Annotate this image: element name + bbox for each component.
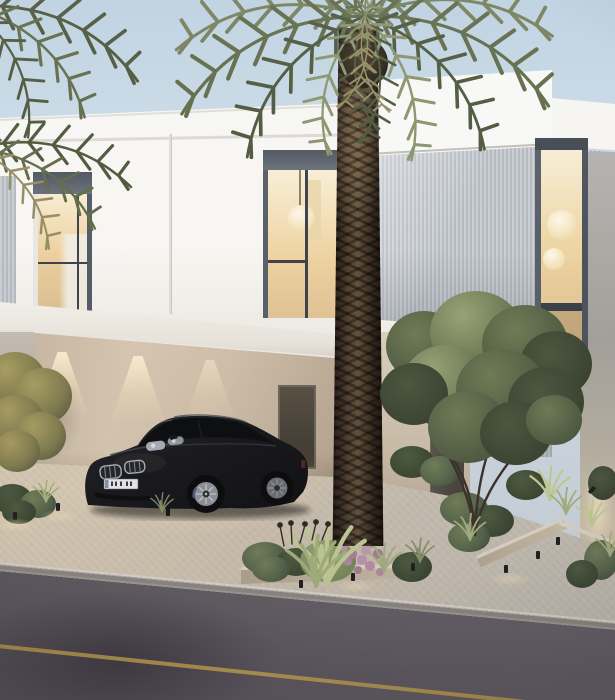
vignette-overlay bbox=[0, 0, 615, 700]
villa-exterior-scene bbox=[0, 0, 615, 700]
